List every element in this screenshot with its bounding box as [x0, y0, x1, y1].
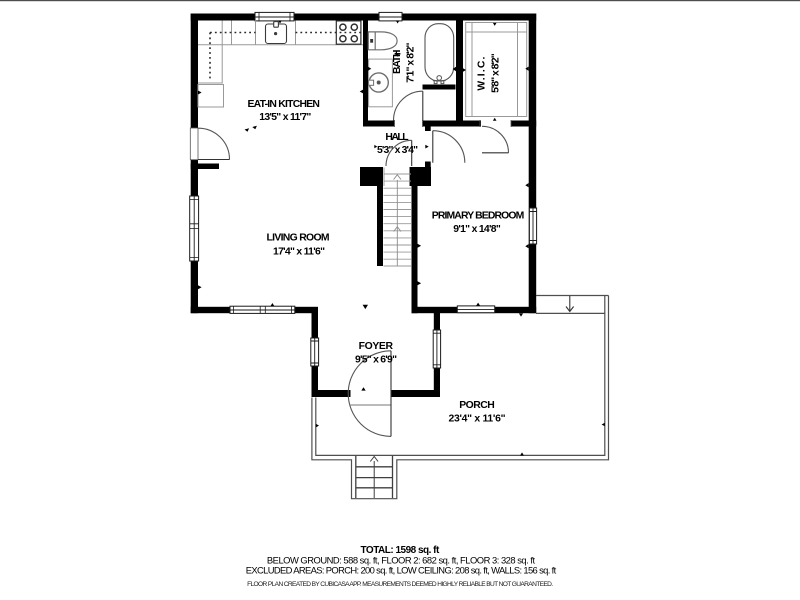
svg-text:23'4" x 11'6": 23'4" x 11'6" — [449, 414, 506, 425]
svg-text:PRIMARY BEDROOM: PRIMARY BEDROOM — [432, 211, 525, 222]
svg-text:EAT-IN KITCHEN: EAT-IN KITCHEN — [247, 99, 320, 110]
svg-text:W.I.C.: W.I.C. — [477, 56, 488, 90]
svg-text:9'1" x 14'8": 9'1" x 14'8" — [453, 224, 501, 235]
svg-text:PORCH: PORCH — [459, 400, 495, 411]
svg-text:5'3" x 3'4": 5'3" x 3'4" — [377, 145, 418, 156]
svg-text:13'5" x 11'7": 13'5" x 11'7" — [259, 112, 311, 123]
svg-text:HALL: HALL — [385, 132, 409, 143]
svg-text:FLOOR PLAN CREATED BY CUBICASA: FLOOR PLAN CREATED BY CUBICASA APP. MEAS… — [247, 581, 553, 588]
svg-text:EXCLUDED AREAS: PORCH: 200 sq.: EXCLUDED AREAS: PORCH: 200 sq. ft, LOW C… — [246, 565, 557, 576]
svg-text:9'5" x 6'9": 9'5" x 6'9" — [355, 355, 397, 366]
svg-text:17'4" x 11'6": 17'4" x 11'6" — [273, 247, 325, 258]
svg-text:LIVING ROOM: LIVING ROOM — [267, 233, 330, 244]
svg-text:BATH: BATH — [392, 49, 403, 73]
svg-text:7'1" x 8'2": 7'1" x 8'2" — [406, 42, 417, 82]
svg-text:FOYER: FOYER — [359, 341, 394, 352]
svg-text:5'8" x 8'2": 5'8" x 8'2" — [491, 53, 502, 93]
